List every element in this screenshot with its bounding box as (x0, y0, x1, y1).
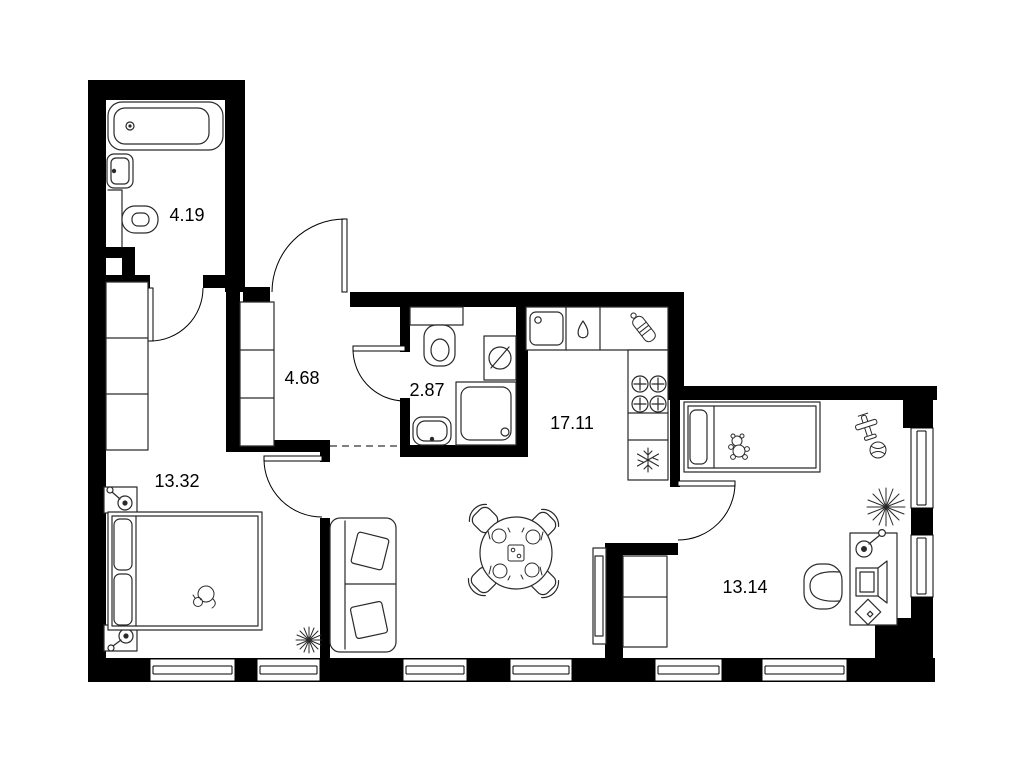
entry-door-swing-icon (272, 219, 347, 292)
floor-plan-canvas: 4.19 4.68 2.87 17.11 13.32 13.14 (0, 0, 1024, 768)
desk-icon (850, 530, 897, 625)
hallway-wardrobe-icon (240, 302, 274, 446)
kitchen-sink-icon (530, 312, 563, 345)
bathtub-icon (108, 102, 223, 150)
plant-icon (867, 488, 905, 526)
window-icon (257, 659, 320, 681)
toilet-sink-icon (413, 417, 451, 445)
plumbing-ledge (108, 190, 122, 247)
window-icon (510, 659, 572, 681)
toilet-icon (424, 325, 455, 366)
bedroom-wardrobe-icon (106, 282, 148, 450)
single-bed-icon (684, 402, 820, 472)
child-wardrobe-icon (623, 556, 667, 647)
floor-plan: 4.19 4.68 2.87 17.11 13.32 13.14 (0, 0, 1024, 768)
room-label-kitchen-living: 17.11 (550, 413, 594, 433)
room-label-child-room: 13.14 (722, 577, 767, 597)
toilet-icon (122, 206, 158, 233)
window-icon (150, 659, 235, 681)
toy-plane-icon (853, 411, 882, 442)
bathroom-sink-icon (107, 154, 133, 188)
pillow-icon (350, 601, 388, 639)
window-icon (911, 428, 933, 508)
toilet-cistern-shelf (410, 307, 463, 325)
dining-table-icon (465, 501, 563, 602)
room-label-toilet: 2.87 (409, 380, 444, 400)
sofa-icon (330, 518, 396, 652)
child-room-door-swing-icon (678, 481, 735, 540)
pillow-icon (351, 532, 390, 571)
tv-console-icon (593, 548, 606, 644)
room-label-bathroom: 4.19 (169, 205, 204, 225)
desk-chair-icon (804, 564, 842, 609)
bathroom-door-swing-icon (148, 288, 203, 341)
room-label-hallway: 4.68 (284, 368, 319, 388)
toilet-door-swing-icon (353, 346, 405, 401)
shower-icon (456, 382, 516, 445)
window-icon (762, 659, 847, 681)
plant-icon (296, 627, 322, 653)
bedroom-door-swing-icon (264, 456, 322, 517)
room-label-bedroom: 13.32 (154, 471, 199, 491)
nightstand-lamp-icon (104, 487, 137, 513)
window-icon (655, 659, 722, 681)
window-icon (911, 535, 933, 597)
ball-icon (870, 442, 886, 458)
washing-machine-icon (484, 336, 516, 380)
double-bed-icon (108, 512, 262, 630)
window-icon (403, 659, 467, 681)
